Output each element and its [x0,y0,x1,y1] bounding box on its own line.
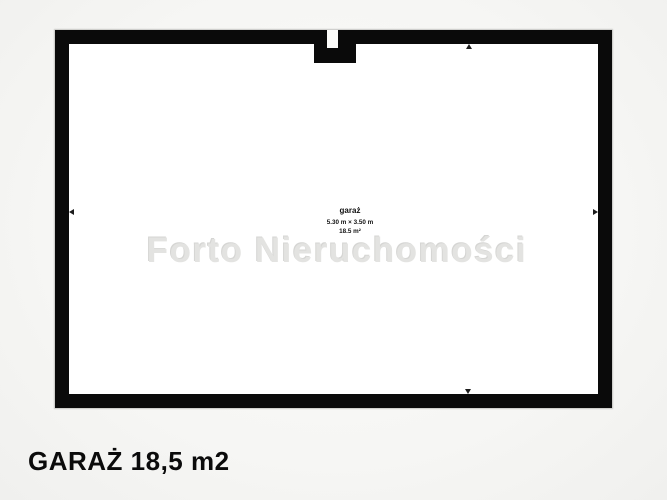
garage-floorplan-outline: garaż 5.30 m × 3.50 m 18.5 m² [55,30,612,408]
dimension-tick-left [69,209,74,215]
room-label: garaż 5.30 m × 3.50 m 18.5 m² [327,206,373,236]
dimension-tick-top [466,44,472,49]
room-area: 18.5 m² [327,227,373,236]
dimension-tick-bottom [465,389,471,394]
top-wall-opening [327,30,338,48]
dimension-tick-right [593,209,598,215]
room-dimensions: 5.30 m × 3.50 m [327,218,373,227]
plan-title: GARAŻ 18,5 m2 [28,446,230,477]
room-name: garaż [327,206,373,216]
floorplan-canvas: garaż 5.30 m × 3.50 m 18.5 m² Forto Nier… [0,0,667,500]
